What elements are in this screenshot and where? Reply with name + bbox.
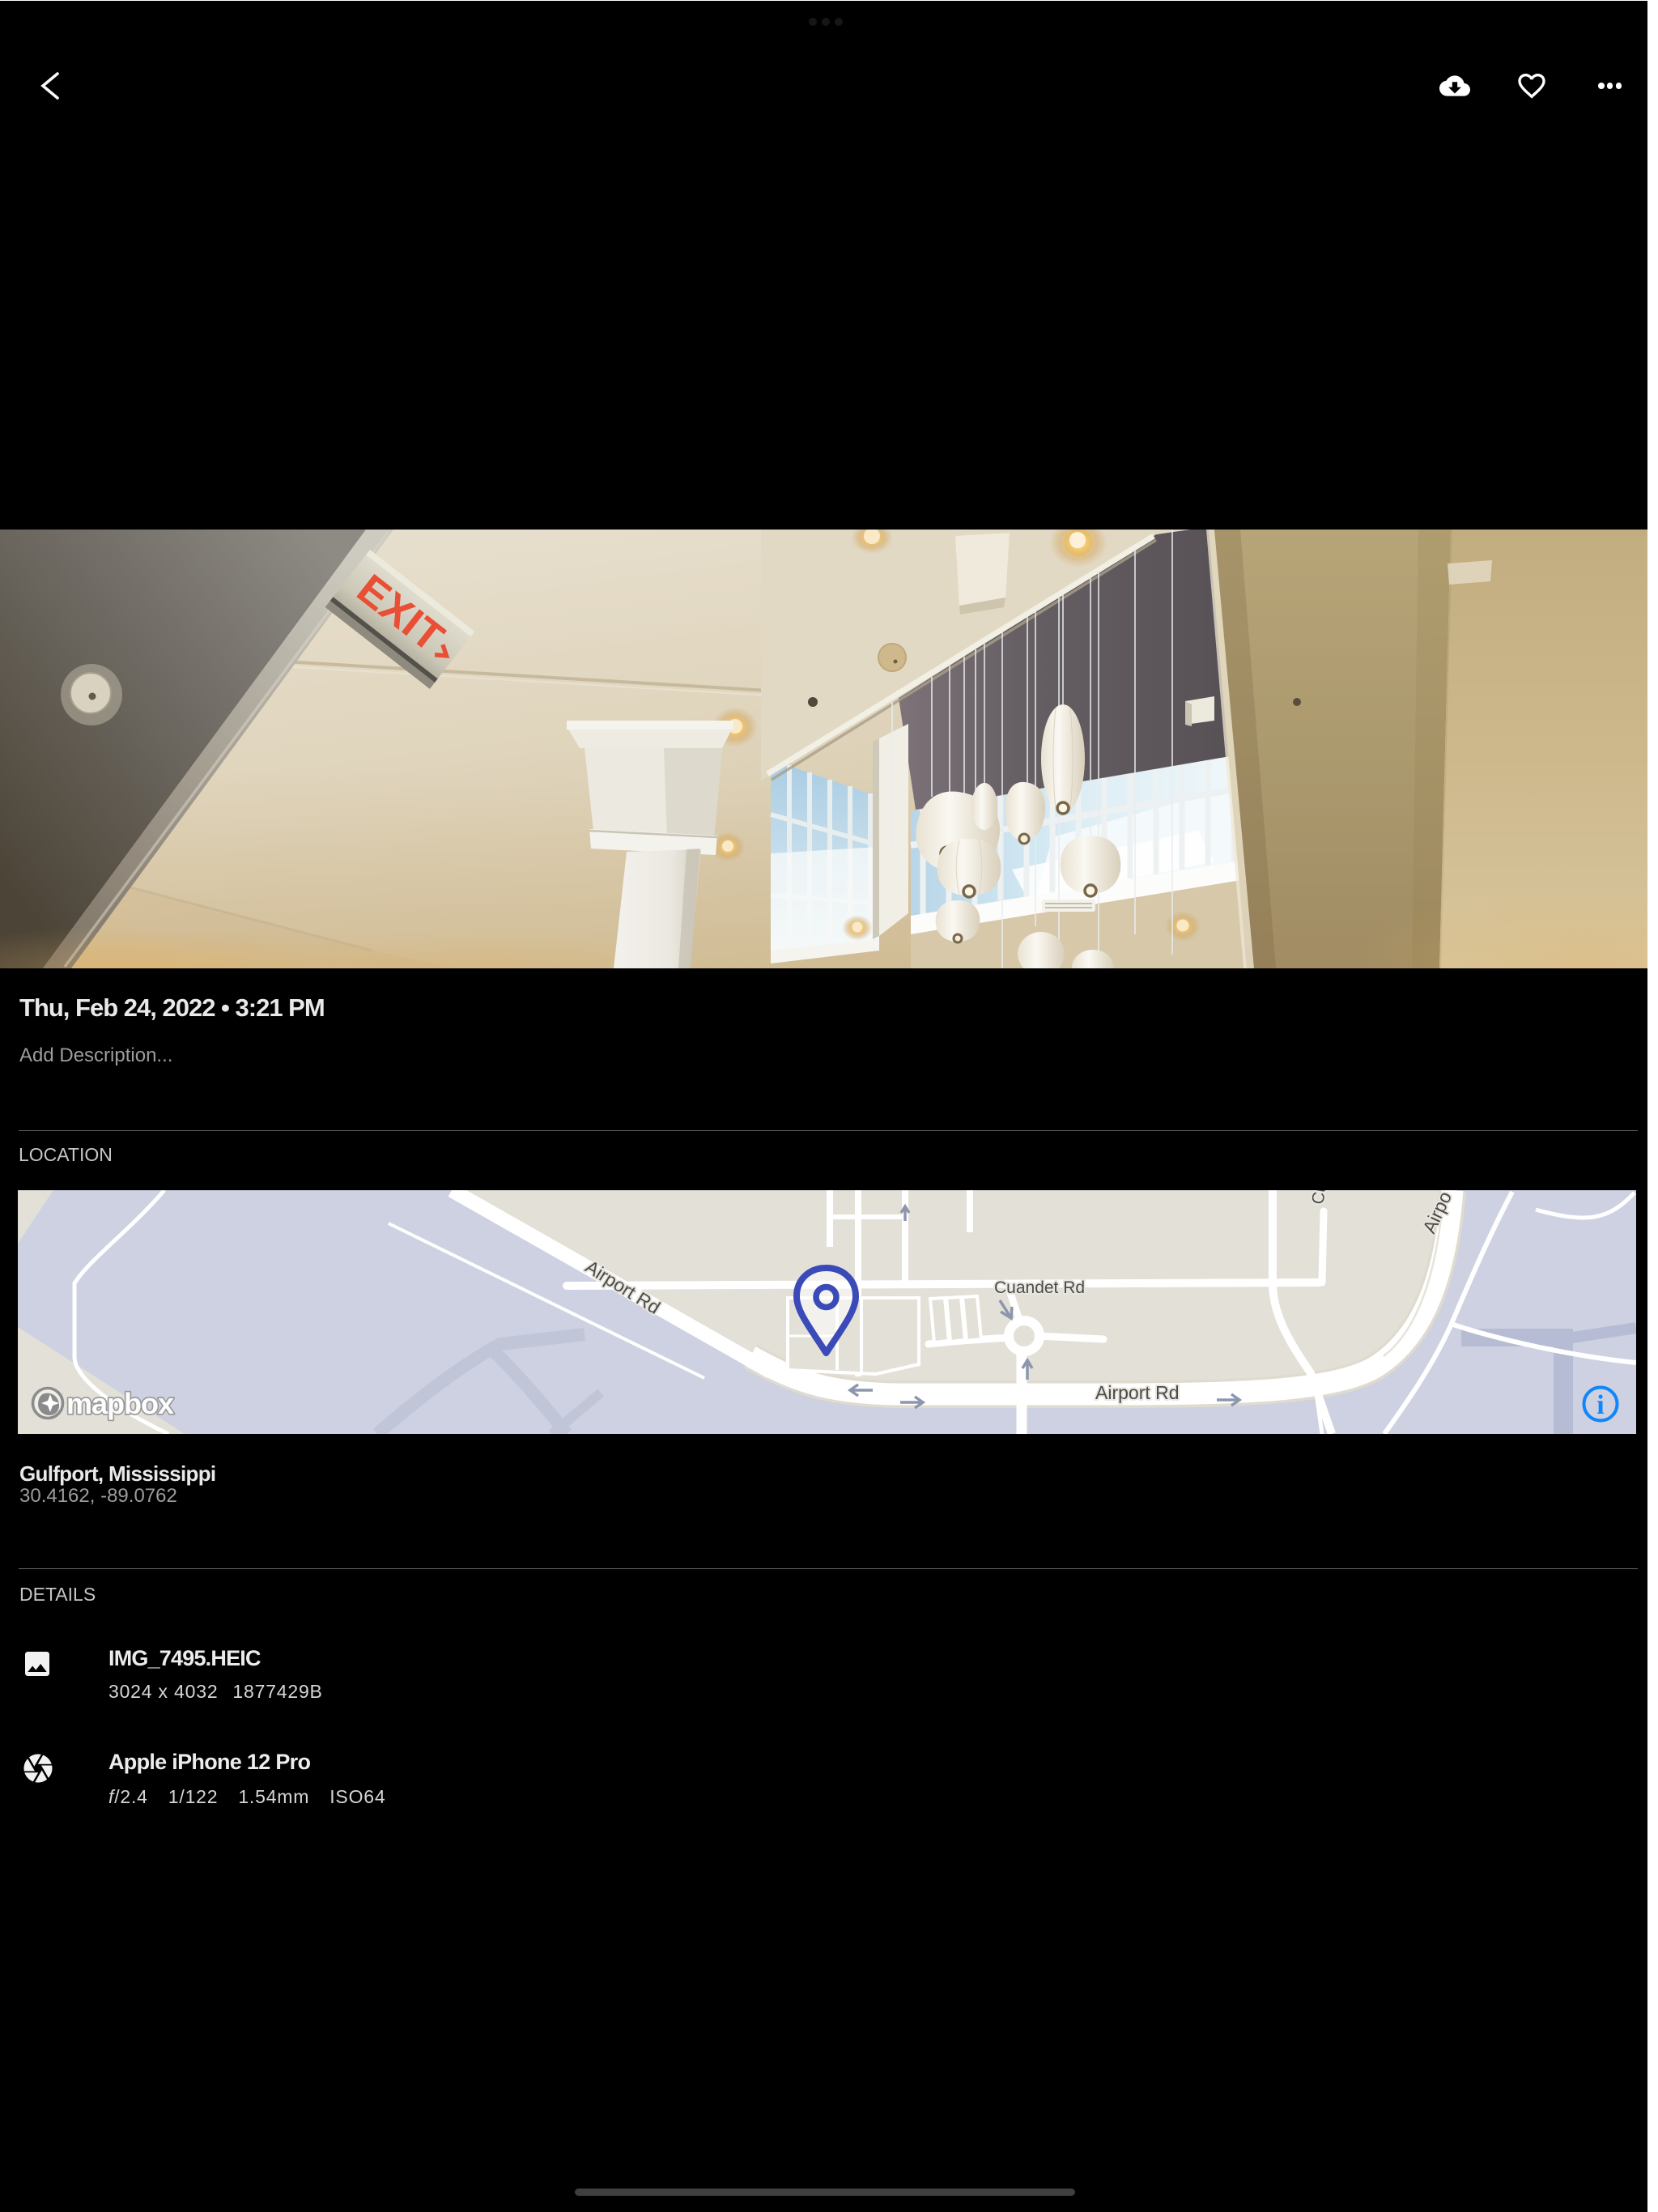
svg-text:mapbox: mapbox (66, 1387, 174, 1420)
svg-text:i: i (1596, 1390, 1604, 1420)
svg-text:Airport Rd: Airport Rd (1095, 1382, 1180, 1403)
svg-text:Cuandet Rd: Cuandet Rd (994, 1278, 1085, 1297)
